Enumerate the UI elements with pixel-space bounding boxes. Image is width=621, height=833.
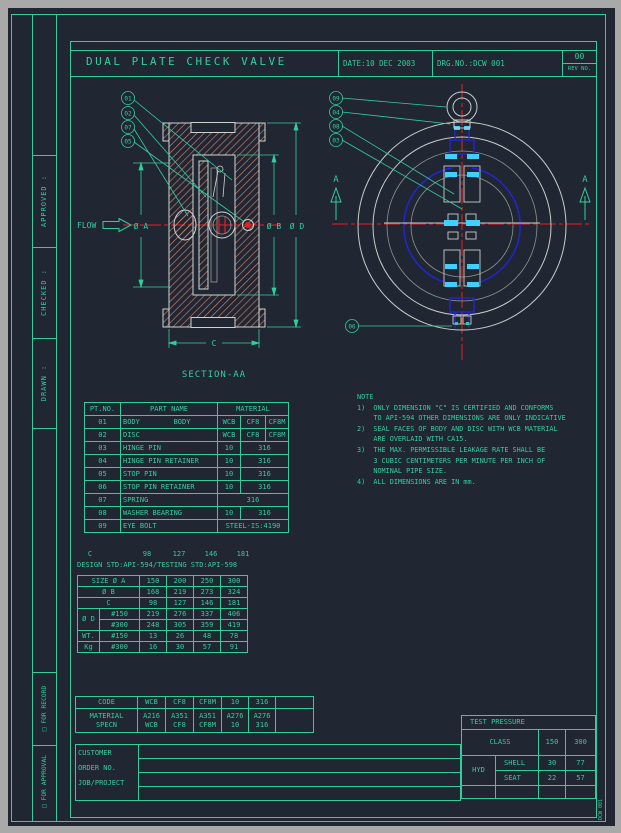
table-cell: 316 (241, 481, 289, 494)
table-cell (276, 709, 314, 733)
table-cell: 219 (167, 587, 194, 598)
dim-a-label: Ø A (134, 221, 149, 231)
table-cell: 300 (566, 730, 596, 756)
table-cell: 91 (221, 642, 248, 653)
drawing-number: DRG.NO.:DCW 001 (437, 59, 505, 68)
table-cell: STOP PIN (121, 468, 218, 481)
table-cell: 276 (167, 609, 194, 620)
table-cell: 10 (218, 455, 241, 468)
table-cell: CODE (76, 697, 138, 709)
table-cell: WCB (218, 429, 241, 442)
approved-label: APPROVED : (34, 156, 55, 246)
table-cell: 146 (194, 598, 221, 609)
note-line: 3 CUBIC CENTIMETERS PER MINUTE PER INCH … (357, 456, 592, 467)
table-cell: CF8M (266, 416, 289, 429)
table-cell: CF8M (266, 429, 289, 442)
table-cell: PART NAME (121, 403, 218, 416)
table-cell: 250 (194, 576, 221, 587)
table-cell: 04 (85, 455, 121, 468)
title-divider (432, 50, 433, 76)
table-cell: CF8 (241, 416, 266, 429)
table-cell (496, 786, 539, 799)
table-cell: CUSTOMER ORDER NO. JOB/PROJECT (76, 745, 139, 801)
table-cell: 10 (218, 481, 241, 494)
table-cell: #150 (100, 609, 140, 620)
table-cell: 316 (218, 494, 289, 507)
parts-table: PT.NO.PART NAMEMATERIAL01BODY BODYWCBCF8… (84, 402, 289, 533)
table-cell: #300 (100, 620, 140, 631)
table-cell: SIZE Ø A (78, 576, 140, 587)
spring-section (174, 210, 196, 240)
dim-d-label: Ø D (290, 221, 305, 231)
table-cell: 16 (140, 642, 167, 653)
table-cell: CLASS (462, 730, 539, 756)
table-cell: 98 (140, 598, 167, 609)
note-line: 1) ONLY DIMENSION "C" IS CERTIFIED AND C… (357, 403, 592, 414)
table-cell: 200 (167, 576, 194, 587)
table-cell: C (82, 549, 98, 559)
table-cell: 359 (194, 620, 221, 631)
table-cell: 08 (85, 507, 121, 520)
note-line: 2) SEAL FACES OF BODY AND DISC WITH WCB … (357, 424, 592, 435)
table-cell: 316 (241, 442, 289, 455)
table-cell: TEST PRESSURE (462, 716, 596, 730)
table-cell: #150 (100, 631, 140, 642)
table-cell: 09 (85, 520, 121, 533)
title-divider (338, 50, 339, 76)
section-letter-right: A (582, 175, 588, 185)
table-cell: A351 CF8 (166, 709, 194, 733)
dimension-table: SIZE Ø A150200250300Ø B168219273324C9812… (77, 575, 248, 653)
table-cell: 316 (249, 697, 276, 709)
table-cell: MATERIAL SPECN (76, 709, 138, 733)
table-cell: CF8M (194, 697, 222, 709)
table-cell (566, 786, 596, 799)
table-cell: A216 WCB (138, 709, 166, 733)
table-cell: 419 (221, 620, 248, 631)
note-line: ARE OVERLAID WITH CA15. (357, 434, 592, 445)
note-line: TO API-594 OTHER DIMENSIONS ARE ONLY IND… (357, 413, 592, 424)
dim-c-row: C98127146181 (82, 549, 259, 559)
code-table: CODEWCBCF8CF8M10316MATERIAL SPECNA216 WC… (75, 696, 314, 733)
table-cell: 57 (194, 642, 221, 653)
leader-marker (455, 322, 458, 325)
table-cell (139, 773, 461, 787)
table-cell (276, 697, 314, 709)
table-cell: WCB (218, 416, 241, 429)
rev-label: REV NO. (562, 66, 597, 72)
notes-block: NOTE1) ONLY DIMENSION "C" IS CERTIFIED A… (357, 392, 592, 487)
table-cell: 316 (241, 455, 289, 468)
balloon-03: 03 (332, 138, 340, 145)
table-cell: #300 (100, 642, 140, 653)
table-cell: 316 (241, 468, 289, 481)
table-cell: 10 (218, 507, 241, 520)
rev-divider (562, 63, 597, 64)
flow-label: FLOW (77, 221, 96, 230)
table-cell: STEEL-IS:4190 (218, 520, 289, 533)
margin-divider (32, 428, 56, 429)
table-cell: Ø D (78, 609, 100, 631)
balloon-02: 02 (124, 111, 132, 118)
customer-block: CUSTOMER ORDER NO. JOB/PROJECT (75, 744, 461, 801)
table-cell: 05 (85, 468, 121, 481)
table-cell: CF8 (241, 429, 266, 442)
table-cell: 98 (131, 549, 163, 559)
table-cell: 316 (241, 507, 289, 520)
table-cell: Ø B (78, 587, 140, 598)
drawn-label: DRAWN : (34, 339, 55, 427)
test-pressure-table: TEST PRESSURECLASS150300HYDSHELL3077SEAT… (461, 715, 596, 799)
table-cell: 337 (194, 609, 221, 620)
table-cell: 03 (85, 442, 121, 455)
table-cell: 01 (85, 416, 121, 429)
table-cell: PT.NO. (85, 403, 121, 416)
table-cell: STOP PIN RETAINER (121, 481, 218, 494)
balloon-05: 05 (124, 139, 132, 146)
for-record-label: □ FOR RECORD (34, 673, 55, 744)
table-cell: 48 (194, 631, 221, 642)
rev-value: 00 (562, 52, 597, 61)
table-cell: BODY BODY (121, 416, 218, 429)
dim-c-label: C (212, 339, 217, 348)
balloon-07: 07 (124, 125, 132, 132)
table-cell: Kg (78, 642, 100, 653)
table-cell: WCB (138, 697, 166, 709)
table-cell: 219 (140, 609, 167, 620)
table-cell: DISC (121, 429, 218, 442)
table-cell: 30 (167, 642, 194, 653)
note-line: 4) ALL DIMENSIONS ARE IN mm. (357, 477, 592, 488)
note-line: NOTE (357, 392, 592, 403)
table-cell: SEAT (496, 771, 539, 786)
table-cell (539, 786, 566, 799)
note-line: NOMINAL PIPE SIZE. (357, 466, 592, 477)
balloon-callouts (330, 92, 463, 333)
retainer-detail (213, 166, 225, 197)
checked-label: CHECKED : (34, 248, 55, 337)
section-view: FLOW Ø A Ø B Ø D C (75, 85, 330, 385)
front-view: A A 09 04 08 03 06 (322, 76, 600, 368)
table-cell: 324 (221, 587, 248, 598)
table-cell: 181 (221, 598, 248, 609)
table-cell (139, 745, 461, 759)
table-cell: 30 (539, 756, 566, 771)
table-cell: 146 (195, 549, 227, 559)
table-cell: 150 (539, 730, 566, 756)
table-cell: 181 (227, 549, 259, 559)
margin-line-outer (32, 14, 33, 822)
title-block-top (70, 50, 597, 51)
table-cell: 13 (140, 631, 167, 642)
sheet-number-vertical: DCW 001 (598, 794, 606, 820)
table-cell (139, 787, 461, 801)
table-cell: 77 (566, 756, 596, 771)
table-cell: 26 (167, 631, 194, 642)
table-cell: A351 CF8M (194, 709, 222, 733)
drawing-date: DATE:10 DEC 2003 (343, 59, 415, 68)
table-cell (98, 549, 131, 559)
cad-viewer-page: APPROVED : CHECKED : DRAWN : □ FOR RECOR… (0, 0, 621, 833)
table-cell: WASHER BEARING (121, 507, 218, 520)
note-line: 3) THE MAX. PERMISSIBLE LEAKAGE RATE SHA… (357, 445, 592, 456)
table-cell: 10 (218, 442, 241, 455)
table-cell: 57 (566, 771, 596, 786)
table-cell: C (78, 598, 140, 609)
table-cell: A276 316 (249, 709, 276, 733)
table-cell: 305 (167, 620, 194, 631)
section-arrow-right (580, 188, 590, 220)
table-cell: 273 (194, 587, 221, 598)
balloon-06: 06 (348, 324, 356, 331)
table-cell: 248 (140, 620, 167, 631)
table-cell: 06 (85, 481, 121, 494)
balloon-04: 04 (332, 110, 340, 117)
table-cell: 22 (539, 771, 566, 786)
table-cell: A276 10 (222, 709, 249, 733)
table-cell (462, 786, 496, 799)
table-cell: 10 (218, 468, 241, 481)
table-cell: HINGE PIN (121, 442, 218, 455)
section-caption: SECTION-AA (182, 370, 246, 380)
table-cell: 127 (167, 598, 194, 609)
table-cell: SHELL (496, 756, 539, 771)
table-cell: 168 (140, 587, 167, 598)
table-cell (139, 759, 461, 773)
table-cell: 406 (221, 609, 248, 620)
table-cell: WT. (78, 631, 100, 642)
balloon-09: 09 (332, 96, 340, 103)
table-cell: 127 (163, 549, 195, 559)
table-cell: EYE BOLT (121, 520, 218, 533)
table-cell: 300 (221, 576, 248, 587)
section-letter-left: A (333, 175, 339, 185)
drawing-title: DUAL PLATE CHECK VALVE (86, 55, 287, 68)
table-cell: 10 (222, 697, 249, 709)
margin-line-inner (56, 14, 57, 822)
table-cell: CF8 (166, 697, 194, 709)
design-std-line: DESIGN STD:API-594/TESTING STD:API-598 (77, 561, 237, 569)
table-cell: HYD (462, 756, 496, 786)
balloon-08: 08 (332, 124, 340, 131)
balloon-01: 01 (124, 96, 132, 103)
for-approval-label: □ FOR APPROVAL (34, 746, 55, 817)
table-cell: 78 (221, 631, 248, 642)
table-cell: 07 (85, 494, 121, 507)
dim-b-label: Ø B (267, 221, 282, 231)
table-cell: HINGE PIN RETAINER (121, 455, 218, 468)
section-arrow-left (331, 188, 341, 220)
disc-section (199, 161, 208, 289)
table-cell: 02 (85, 429, 121, 442)
leader-marker (466, 322, 469, 325)
table-cell: 150 (140, 576, 167, 587)
table-cell: MATERIAL (218, 403, 289, 416)
table-cell: SPRING (121, 494, 218, 507)
